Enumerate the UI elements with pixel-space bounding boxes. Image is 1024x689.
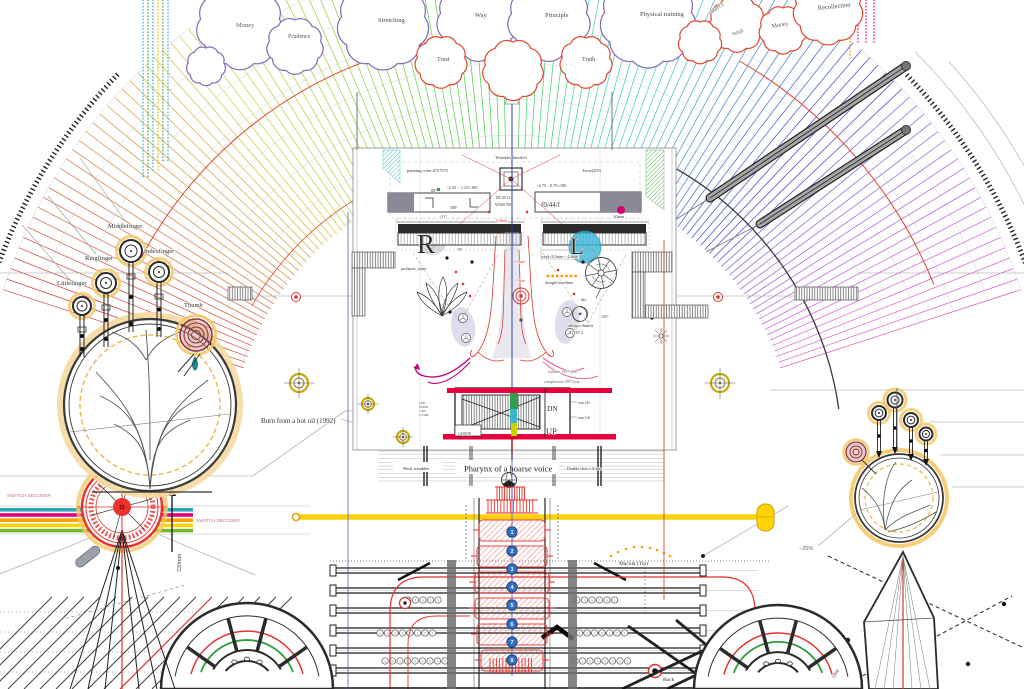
label-deg-51: −51° (439, 214, 447, 219)
svg-text:5: 5 (437, 598, 439, 602)
label-truth: Truth (582, 57, 595, 63)
svg-text:5: 5 (594, 631, 596, 635)
label-minus25: −25% (799, 546, 813, 552)
label-way: Way (475, 12, 487, 19)
label-trust: Trust (437, 57, 450, 63)
label-eye-right-letter: R (417, 229, 435, 259)
label-prolapsis: prolapsis_wiper (401, 266, 427, 271)
svg-text:5: 5 (601, 631, 603, 635)
label-swatch-bottom: SWATCH.DECODER. (196, 518, 241, 523)
blueprint-canvas: Neck wrinklesPharynx of a hoarse voiceDo… (0, 0, 1024, 689)
svg-text:5: 5 (612, 659, 614, 663)
svg-text:2: 2 (510, 549, 513, 555)
svg-text:5: 5 (616, 631, 618, 635)
label-complexion-year: complexion 1997/year (544, 379, 581, 384)
label-stretching: Stretching (378, 17, 405, 24)
label-swatch-top: SWATCH.DECODER (7, 493, 51, 498)
svg-text:5: 5 (599, 598, 601, 602)
svg-text:5: 5 (604, 659, 606, 663)
label-dn: DN (547, 404, 558, 413)
svg-text:5: 5 (619, 659, 621, 663)
label-ccaw: C-CAW (419, 413, 429, 417)
label-dt072: DT.07.2 (570, 330, 583, 335)
svg-text:5: 5 (606, 598, 608, 602)
svg-text:5: 5 (414, 659, 416, 663)
label-62mm: 62mm (614, 214, 625, 219)
svg-text:5: 5 (582, 659, 584, 663)
svg-text:5: 5 (430, 598, 432, 602)
svg-text:5: 5 (624, 631, 626, 635)
svg-text:5: 5 (627, 659, 629, 663)
svg-text:1: 1 (510, 530, 513, 536)
label-rx-right: −4.75 −0.75×180 (536, 183, 567, 188)
label-burn: Burn from a hot oil (1992) (261, 417, 336, 425)
svg-text:5: 5 (510, 603, 513, 609)
label-deg135: 135° (601, 314, 609, 319)
neck-wrinkles-label: Neck wrinkles (403, 466, 429, 471)
label-w500700: W500.700 (495, 203, 511, 207)
svg-text:5: 5 (609, 631, 611, 635)
svg-text:5: 5 (589, 659, 591, 663)
label-macula: Macula (Tip) (619, 560, 648, 567)
svg-text:5: 5 (379, 631, 381, 635)
neck-section: Neck wrinklesPharynx of a hoarse voiceDo… (378, 446, 665, 500)
label-dt0514: DT.05.14 (496, 196, 511, 200)
label-indexfinger: Indexfinger (144, 248, 175, 255)
svg-text:5: 5 (597, 659, 599, 663)
label-money-left: Money (236, 22, 255, 29)
label-1-5mm: 1.5mm (514, 279, 525, 283)
svg-text:5: 5 (591, 598, 593, 602)
left-hand-wheel (60, 237, 240, 496)
label-220mm: 220mm (177, 553, 183, 572)
svg-text:5: 5 (394, 631, 396, 635)
label-dry: dry (581, 297, 586, 302)
svg-text:5: 5 (424, 631, 426, 635)
label-was16: was.16+ (578, 401, 591, 405)
svg-text:5: 5 (584, 598, 586, 602)
svg-text:5: 5 (432, 631, 434, 635)
label-middlefinger: Middlefinger (108, 223, 143, 230)
svg-text:5: 5 (614, 598, 616, 602)
label-back: Back (663, 677, 675, 683)
svg-text:5: 5 (402, 631, 404, 635)
svg-text:7: 7 (510, 640, 513, 646)
label-physical-training: Physical training (640, 11, 685, 18)
svg-text:5: 5 (415, 598, 417, 602)
svg-text:5: 5 (384, 659, 386, 663)
svg-text:5: 5 (392, 659, 394, 663)
label-deg70: 70° (457, 247, 463, 252)
label-prudence: Prudence (288, 34, 311, 40)
label-wrinkle-year: wrinkle 1997/year (548, 369, 578, 374)
svg-text:8: 8 (510, 658, 513, 664)
label-twist: Twist(205) (582, 168, 602, 173)
svg-text:5: 5 (429, 659, 431, 663)
label-deg180: 180° (450, 205, 458, 210)
svg-text:5: 5 (422, 598, 424, 602)
svg-text:5: 5 (586, 631, 588, 635)
svg-text:5: 5 (399, 659, 401, 663)
double-chin-label: Double chin = S-line (567, 466, 602, 471)
label-ringfinger: Ringfinger (85, 255, 114, 262)
label-rx-left: −4.35 − 1.25×180 (446, 185, 478, 190)
right-hand-wheel (844, 388, 948, 546)
label-painting-color: painting color #757575 (407, 168, 449, 173)
label-thumb: Thumb (184, 302, 203, 309)
svg-text:5: 5 (579, 631, 581, 635)
svg-text:3: 3 (510, 567, 513, 573)
label-wrinkles-knurled: Wrinkles knurled (495, 155, 527, 160)
label-2-0mm: 2.0mm (514, 260, 525, 264)
svg-text:5: 5 (387, 631, 389, 635)
label-up: UP (546, 426, 557, 436)
label-4-0mm: 4.0mm (496, 218, 508, 223)
face-schematic (352, 92, 708, 487)
svg-text:5: 5 (444, 659, 446, 663)
label-weak: weak (0.5mm ~ 4.0mm) (541, 254, 580, 259)
label-thought-bent: thought bent 2mm (545, 281, 573, 285)
label-was14: was.14+ (578, 416, 591, 420)
label-datebox: 14/05/W (458, 432, 472, 436)
label-f044f: f0/44/f (541, 201, 561, 209)
label-littlefinger: Littlefinger (57, 280, 87, 287)
svg-text:6: 6 (510, 622, 513, 628)
pharynx-title: Pharynx of a hoarse voice (464, 464, 553, 474)
label-deg80: 80° (431, 188, 437, 193)
label-allergic: allergic rhinitis (568, 323, 594, 328)
diagram-svg: Neck wrinklesPharynx of a hoarse voiceDo… (0, 0, 1024, 689)
svg-text:5: 5 (422, 659, 424, 663)
label-principle: Principle (545, 12, 569, 19)
svg-text:5: 5 (417, 631, 419, 635)
svg-text:5: 5 (437, 659, 439, 663)
